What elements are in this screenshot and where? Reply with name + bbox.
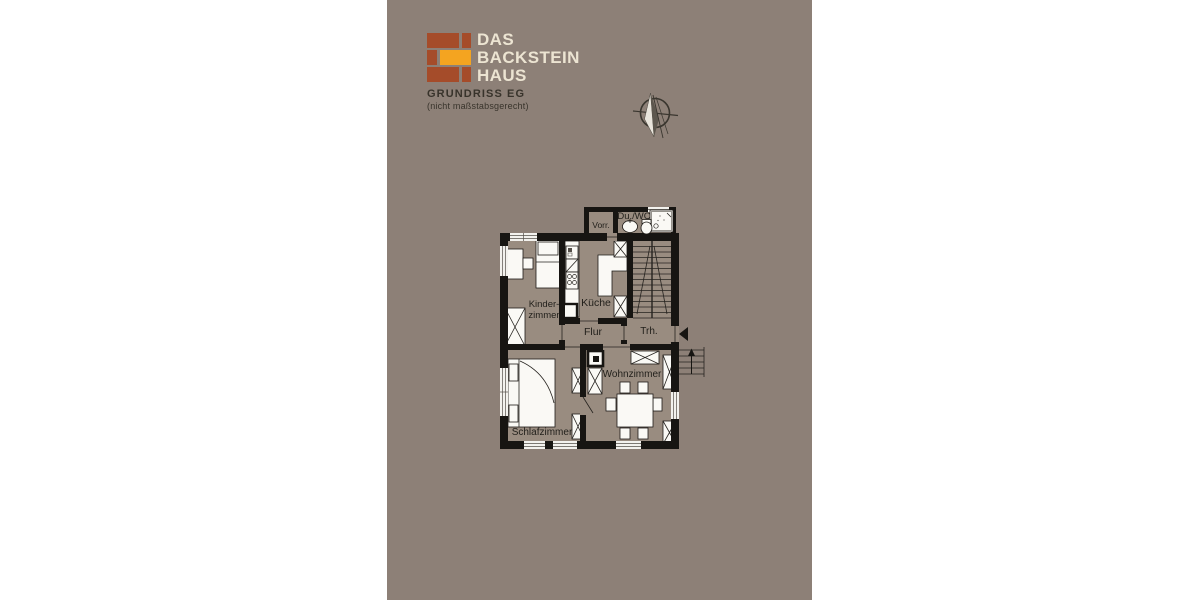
pillow-icon — [509, 405, 518, 422]
pillow-icon — [509, 364, 518, 381]
chair-icon — [606, 398, 616, 411]
pillow-icon — [538, 242, 558, 255]
stove-icon — [566, 272, 578, 289]
brand-line-1: DAS — [477, 31, 580, 49]
cabinet-icon — [588, 368, 602, 394]
door-icon — [621, 326, 627, 340]
window-icon — [510, 233, 537, 241]
room-label-living-room: Wohnzimmer — [603, 369, 662, 380]
room-label-staircase: Trh. — [640, 326, 657, 337]
chair-icon — [523, 258, 533, 269]
window-icon — [553, 441, 577, 449]
room-label-kids-room-line2: zimmer — [528, 310, 559, 321]
tall-cabinet-icon — [614, 241, 627, 257]
brick-icon — [427, 50, 437, 65]
window-icon — [500, 368, 508, 416]
room-label-kids-room-line1: Kinder- — [529, 299, 560, 310]
brick-logo-icon — [427, 33, 471, 82]
brick-icon — [427, 33, 459, 48]
chair-icon — [653, 398, 662, 411]
dining-table-icon — [617, 394, 653, 427]
brick-yellow-icon — [440, 50, 471, 65]
door-icon — [603, 344, 630, 350]
page-title: GRUNDRISS EG — [427, 88, 525, 100]
room-label-vorraum: Vorr. — [592, 220, 609, 230]
window-icon — [671, 392, 679, 419]
page: DAS BACKSTEIN HAUS GRUNDRISS EG (nicht m… — [0, 0, 1200, 600]
entry-arrow-icon — [679, 327, 688, 341]
entry-door-icon — [671, 326, 679, 342]
room-label-bedroom: Schlafzimmer — [512, 427, 573, 438]
brand-name: DAS BACKSTEIN HAUS — [477, 31, 580, 85]
door-icon — [607, 233, 617, 241]
desk-icon — [506, 249, 523, 279]
room-label-kitchen: Küche — [581, 297, 611, 309]
room-label-hallway: Flur — [584, 326, 603, 338]
door-icon — [580, 318, 598, 324]
window-icon — [500, 246, 508, 276]
oven-icon — [566, 246, 578, 259]
brick-icon — [462, 67, 471, 82]
brand-line-2: BACKSTEIN — [477, 49, 580, 67]
page-subtitle: (nicht maßstabsgerecht) — [427, 101, 529, 111]
content-column: DAS BACKSTEIN HAUS GRUNDRISS EG (nicht m… — [387, 0, 812, 600]
tall-cabinet-icon — [614, 296, 627, 317]
brick-icon — [427, 67, 459, 82]
fireplace-icon — [588, 351, 603, 366]
room-label-shower-wc: Du./WC — [617, 211, 650, 222]
chair-icon — [638, 382, 648, 393]
chair-icon — [620, 428, 630, 439]
window-icon — [524, 441, 545, 449]
floorplan-drawing: Vorr. Du./WC Kinder- zimmer Küche Flur T… — [482, 195, 714, 463]
shower-icon — [650, 210, 673, 232]
kitchen-sink-icon — [566, 259, 578, 272]
chair-icon — [638, 428, 648, 439]
door-icon — [559, 325, 565, 340]
brand-line-3: HAUS — [477, 67, 580, 85]
exterior-steps-icon — [679, 347, 704, 377]
brick-icon — [462, 33, 471, 48]
compass-north-icon — [632, 88, 682, 142]
window-icon — [616, 441, 641, 449]
door-icon — [565, 344, 580, 350]
chair-icon — [620, 382, 630, 393]
sideboard-icon — [631, 351, 659, 364]
